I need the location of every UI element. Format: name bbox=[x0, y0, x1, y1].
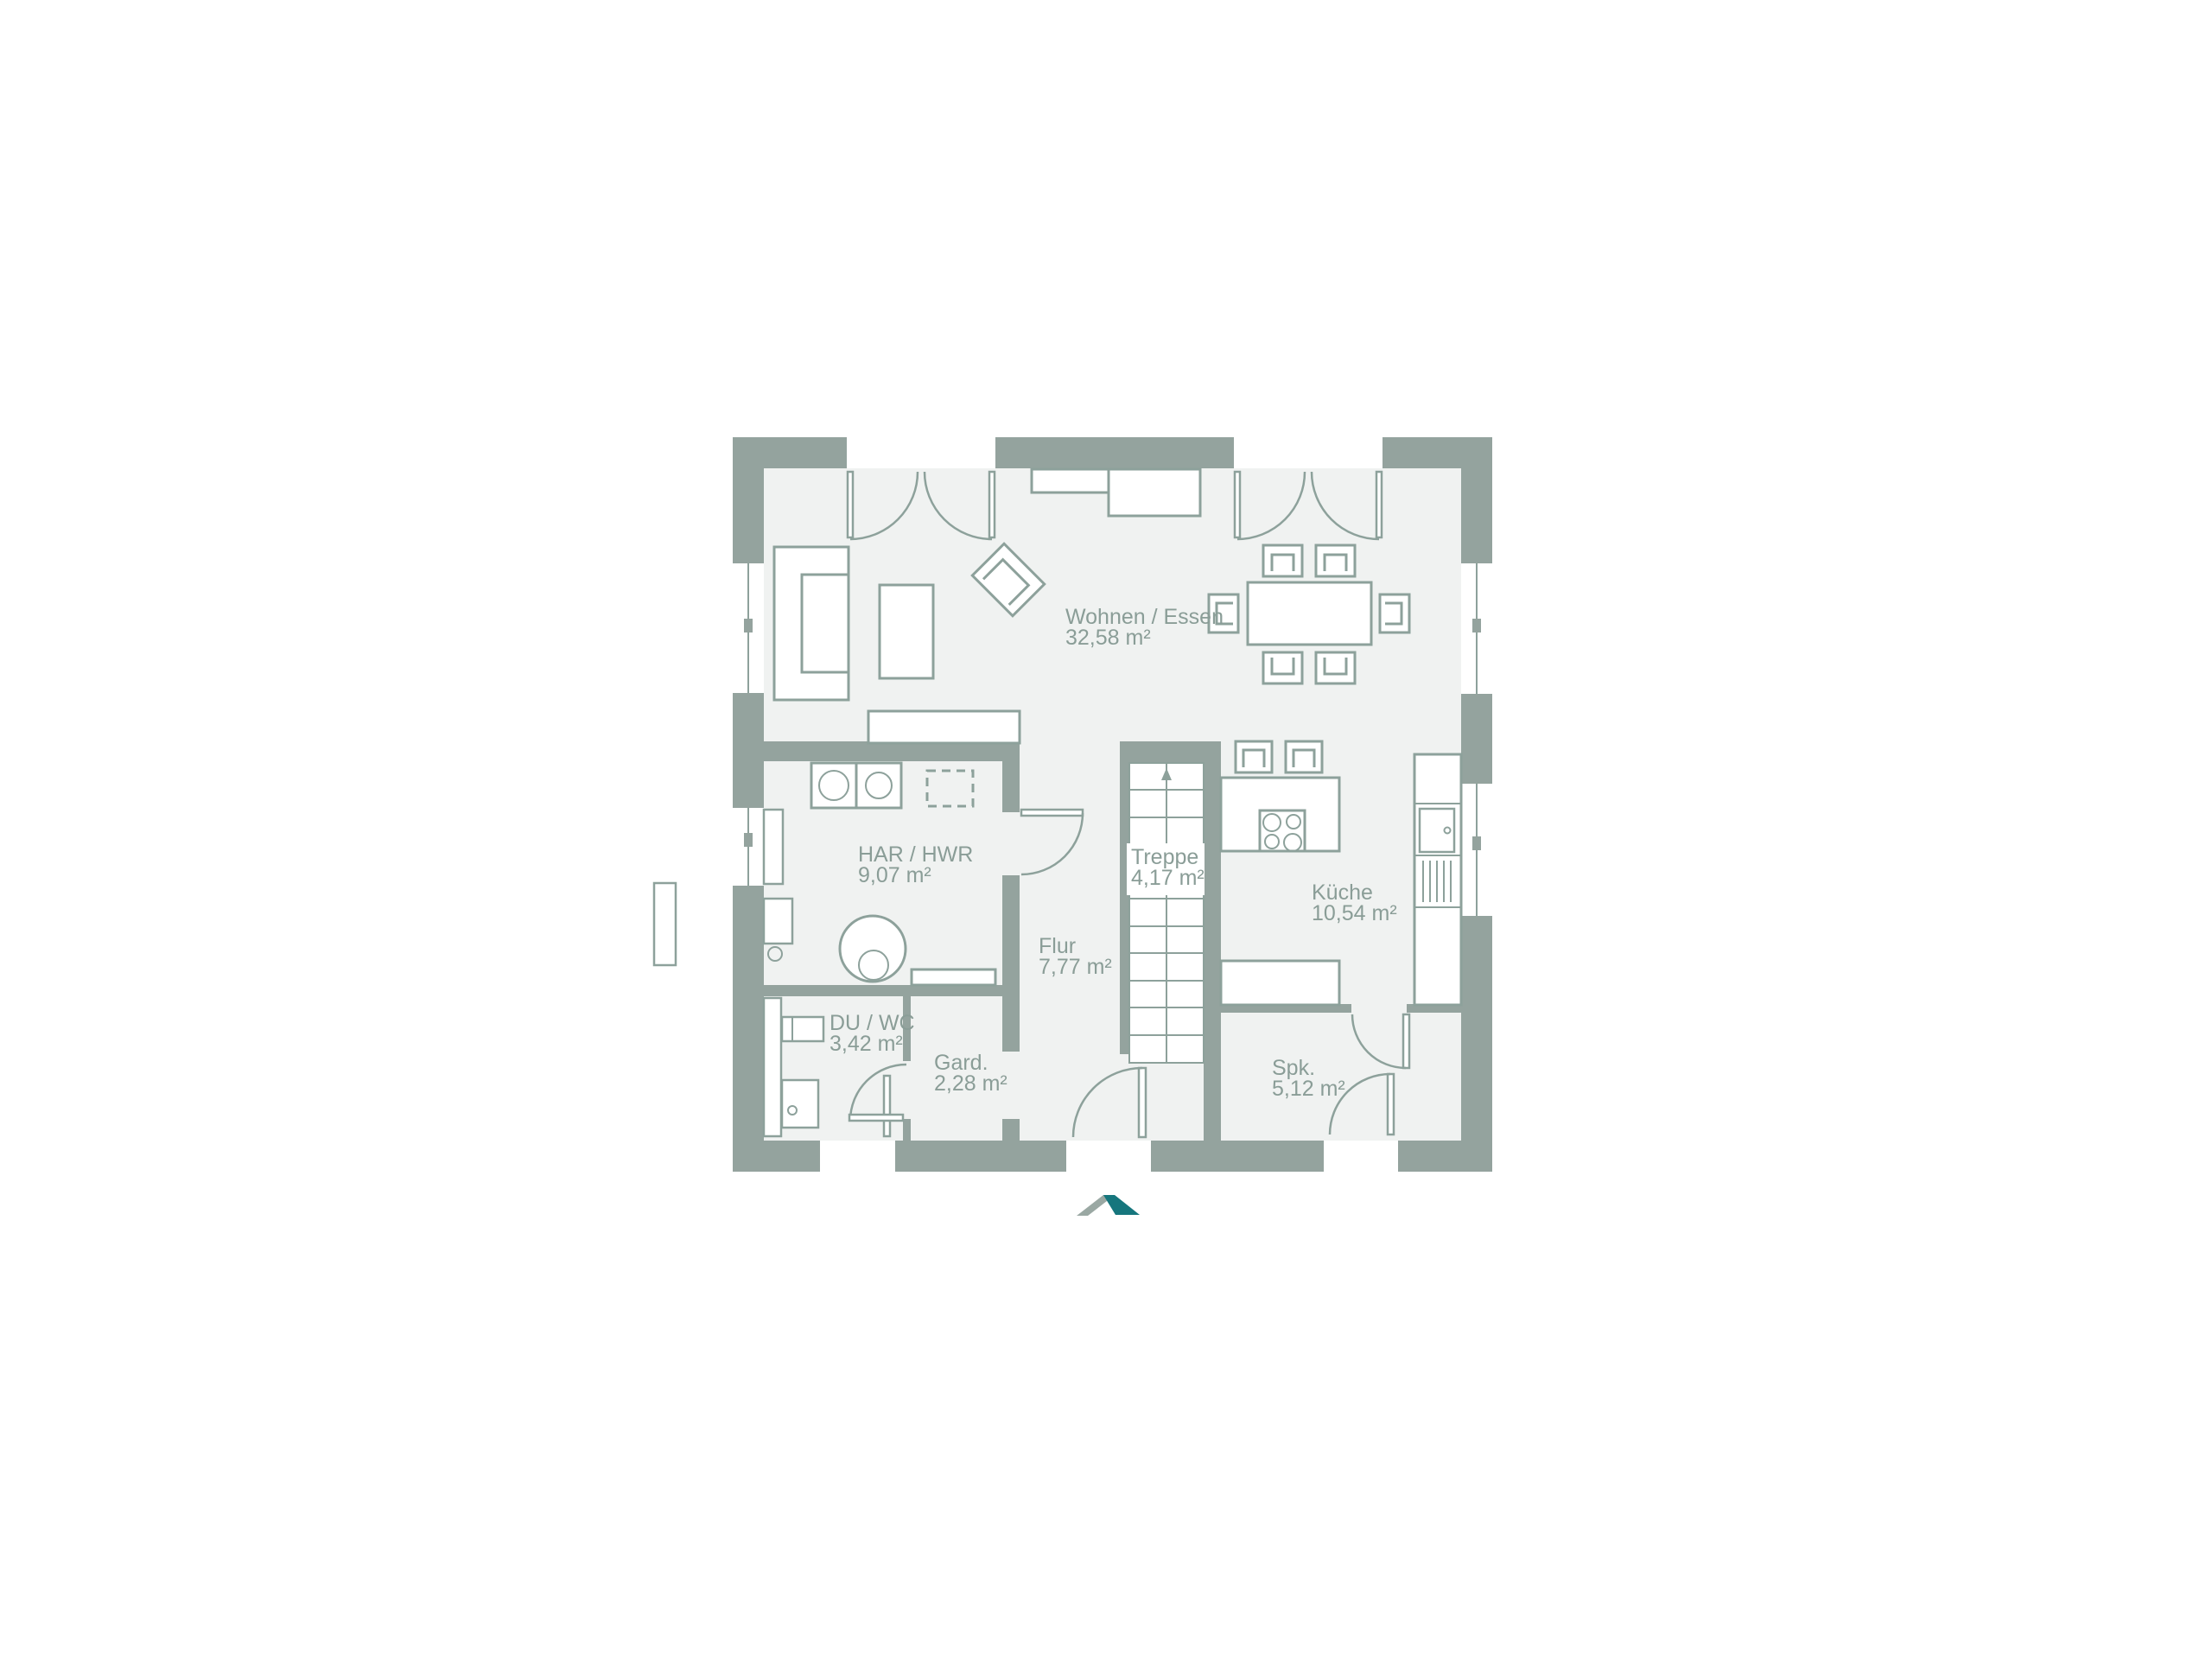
utility-sink bbox=[764, 899, 792, 944]
wall-bottom-3 bbox=[1151, 1141, 1324, 1172]
kitchen-counter-bottom bbox=[1221, 961, 1339, 1005]
window-handle-icon bbox=[744, 619, 753, 632]
floor-plan-svg: Wohnen / Essen 32,58 m² HAR / HWR 9,07 m… bbox=[0, 0, 2212, 1659]
wall-bottom-2 bbox=[895, 1141, 1066, 1172]
spk-door-opening bbox=[1324, 1141, 1398, 1172]
door-leaf bbox=[1403, 1014, 1409, 1068]
window-handle-icon bbox=[1472, 836, 1481, 850]
exterior-element bbox=[654, 883, 676, 965]
door-leaf bbox=[1235, 472, 1240, 537]
water-heater bbox=[840, 916, 906, 982]
wall-left-1 bbox=[733, 437, 764, 563]
window-handle-icon bbox=[1472, 619, 1481, 632]
room-area-wohnen-essen: 32,58 m² bbox=[1065, 626, 1151, 650]
shower-screen bbox=[849, 1115, 903, 1121]
wall-left-3 bbox=[733, 886, 764, 1141]
entry-door-opening bbox=[1066, 1141, 1151, 1172]
terrace-door-opening-right bbox=[1234, 437, 1382, 468]
sofa-seat bbox=[802, 575, 849, 672]
sideboard-top-large bbox=[1109, 469, 1200, 516]
wall-gard-flur-lower bbox=[1002, 1119, 1020, 1141]
wall-stair-left bbox=[1120, 763, 1129, 1054]
wall-flur-har-lower bbox=[1002, 875, 1020, 996]
door-leaf bbox=[1021, 810, 1083, 816]
duwc-window-opening bbox=[820, 1141, 895, 1172]
wall-bottom-1 bbox=[733, 1141, 820, 1172]
shelf-bottom bbox=[912, 969, 995, 985]
kitchen-stool bbox=[1236, 741, 1272, 772]
wall-flur-har-upper bbox=[1002, 761, 1020, 812]
door-leaf bbox=[1139, 1068, 1146, 1137]
wall-har-bottom bbox=[764, 985, 1020, 996]
wall-bottom-4 bbox=[1398, 1141, 1492, 1172]
sideboard-low bbox=[868, 711, 1020, 743]
room-area-treppe: 4,17 m² bbox=[1131, 866, 1205, 890]
room-area-spk: 5,12 m² bbox=[1272, 1077, 1345, 1101]
window-handle-icon bbox=[744, 833, 753, 847]
room-area-du-wc: 3,42 m² bbox=[829, 1032, 903, 1056]
toilet bbox=[782, 1080, 818, 1128]
sideboard-top-small bbox=[1032, 469, 1109, 493]
wall-right-3 bbox=[1461, 916, 1492, 1141]
floor-plan-page: Wohnen / Essen 32,58 m² HAR / HWR 9,07 m… bbox=[0, 0, 2212, 1659]
radiator bbox=[764, 998, 781, 1136]
door-leaf bbox=[848, 472, 853, 537]
room-area-gard: 2,28 m² bbox=[934, 1071, 1007, 1096]
wall-left-2 bbox=[733, 693, 764, 808]
room-area-flur: 7,77 m² bbox=[1039, 955, 1112, 979]
kitchen-sink bbox=[1420, 809, 1454, 852]
wall-duwc-gard-lower bbox=[903, 1119, 911, 1141]
wall-gard-flur-upper bbox=[1002, 996, 1020, 1052]
roof-logo-icon bbox=[1077, 1195, 1140, 1216]
terrace-door-opening-left bbox=[847, 437, 995, 468]
room-area-kueche: 10,54 m² bbox=[1312, 901, 1397, 925]
roof-logo-right-slope bbox=[1103, 1195, 1140, 1215]
wall-stair-right bbox=[1204, 763, 1221, 1141]
shower-screen bbox=[884, 1076, 890, 1136]
door-leaf bbox=[1388, 1074, 1394, 1135]
wall-right-1 bbox=[1461, 437, 1492, 563]
wall-right-2 bbox=[1461, 694, 1492, 784]
door-leaf bbox=[989, 472, 995, 537]
coffee-table bbox=[880, 585, 933, 678]
dining-table bbox=[1248, 582, 1371, 645]
kitchen-stool bbox=[1286, 741, 1322, 772]
wall-stair-top bbox=[1120, 741, 1221, 763]
washbasin bbox=[782, 1017, 823, 1041]
wall-top-2 bbox=[995, 437, 1234, 468]
shelf-left bbox=[764, 810, 783, 884]
staircase bbox=[1127, 763, 1205, 1063]
door-leaf bbox=[1376, 472, 1382, 537]
room-area-har-hwr: 9,07 m² bbox=[858, 863, 931, 887]
